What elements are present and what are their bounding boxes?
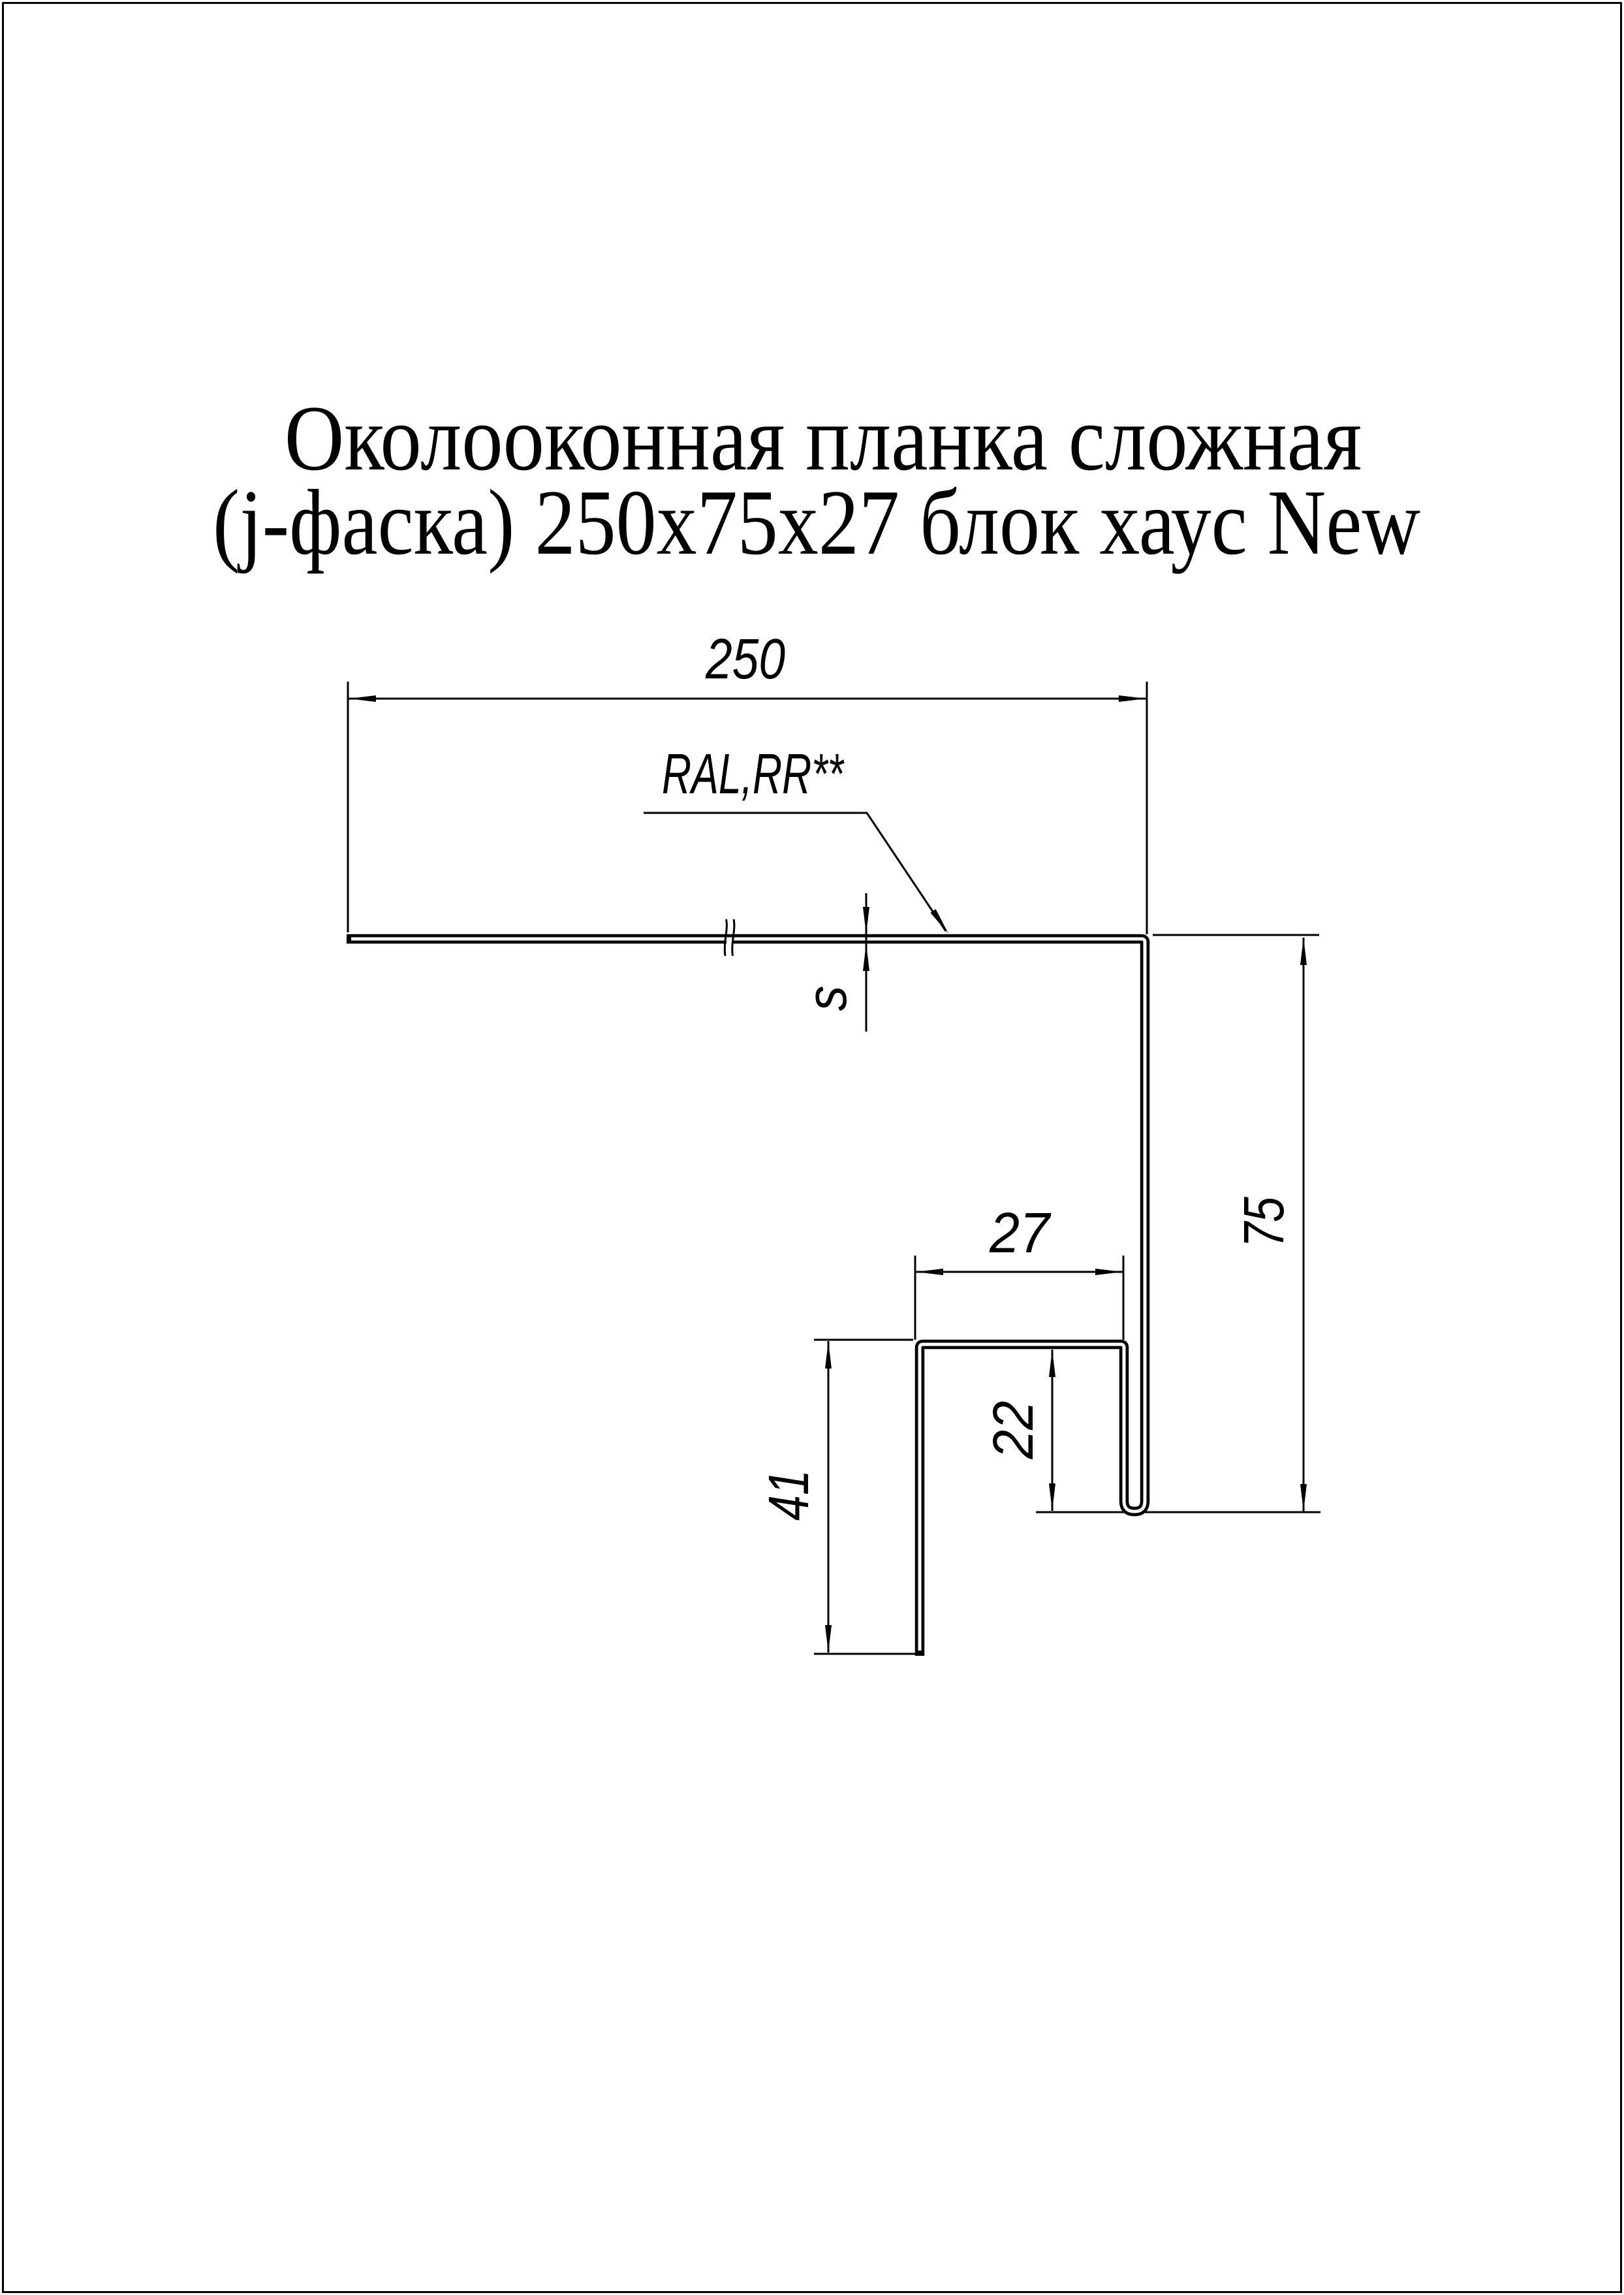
svg-text:RAL,RR**: RAL,RR** (662, 742, 845, 806)
svg-text:41: 41 (757, 1470, 820, 1521)
svg-text:250: 250 (705, 627, 785, 691)
svg-text:s: s (795, 986, 858, 1011)
svg-text:22: 22 (982, 1401, 1045, 1460)
svg-text:75: 75 (1232, 1197, 1296, 1248)
svg-text:27: 27 (989, 1201, 1052, 1265)
svg-text:(j-фаска) 250х75х27 блок хаус: (j-фаска) 250х75х27 блок хаус New (213, 471, 1420, 574)
